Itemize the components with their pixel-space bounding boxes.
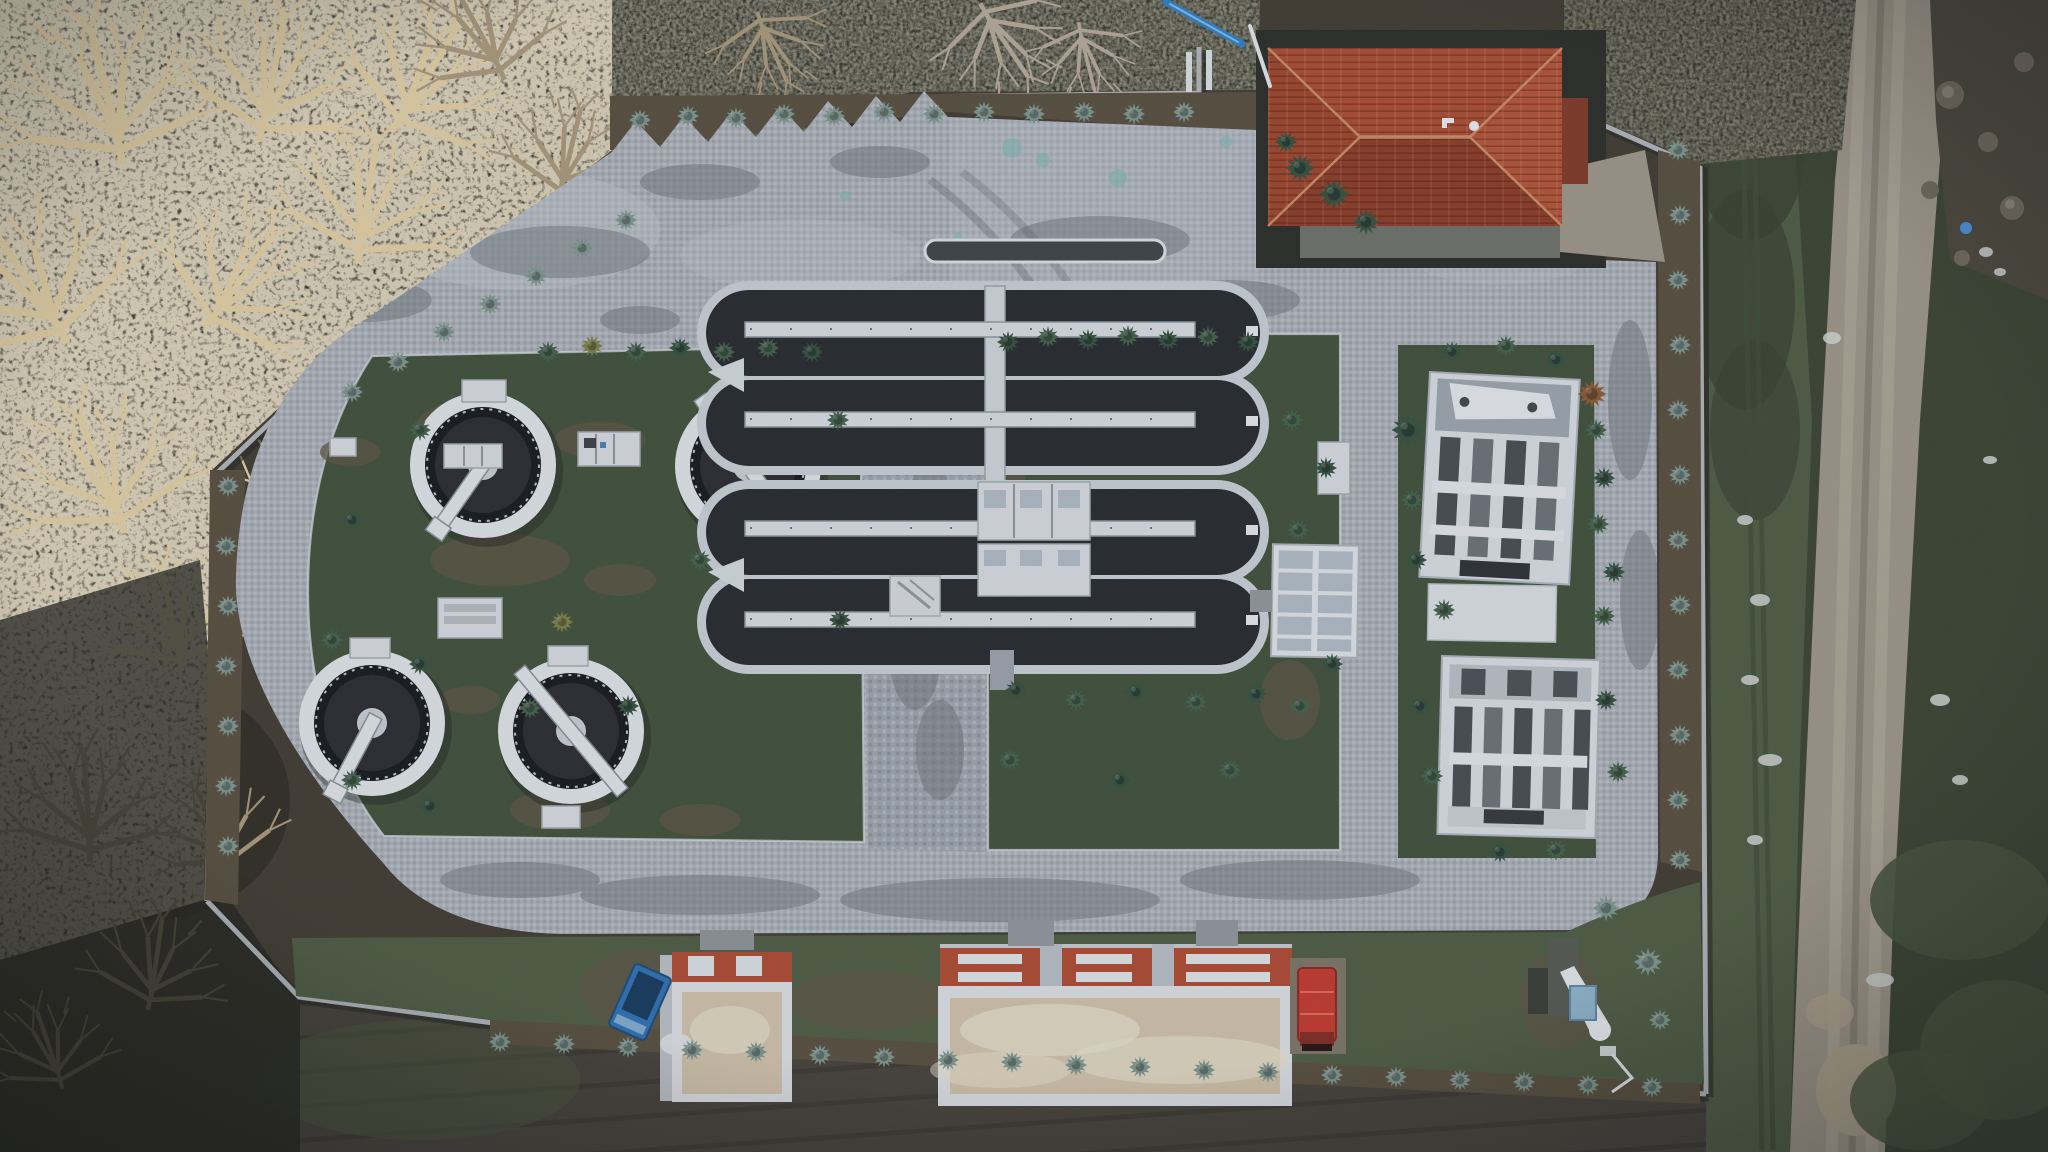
vignette: [0, 0, 2048, 1152]
aerial-photo: Aerial top-down view of a wastewater tre…: [0, 0, 2048, 1152]
photo-stage: Aerial top-down view of a wastewater tre…: [0, 0, 2048, 1152]
